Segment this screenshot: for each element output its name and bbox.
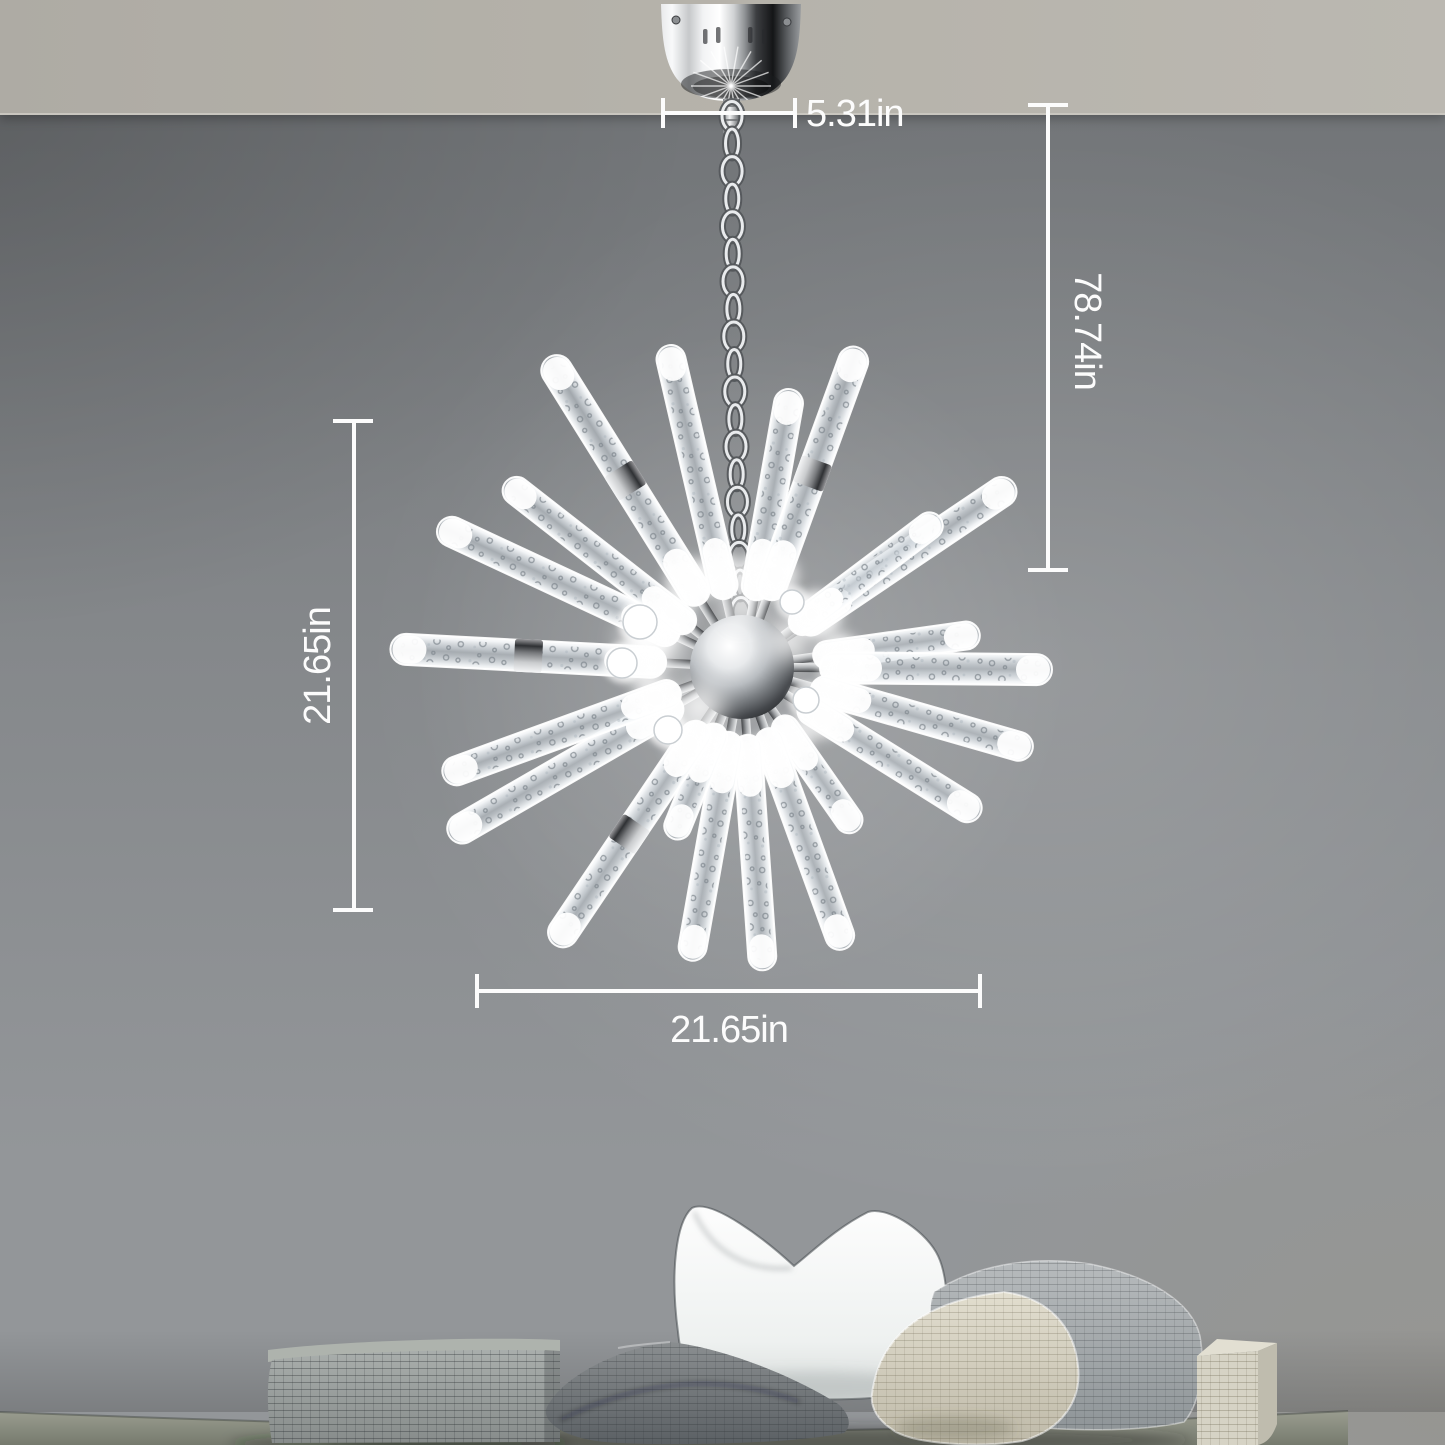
scene-graphics: [0, 0, 1445, 1445]
bolster-cushion: [268, 1339, 560, 1443]
dimension-line: [663, 111, 797, 115]
dimension-tick: [793, 98, 797, 128]
dimension-tick: [1028, 103, 1068, 107]
bench-scene: [0, 1206, 1445, 1445]
dimension-tick: [333, 908, 373, 912]
dimension-line: [1046, 105, 1050, 572]
dimension-label-fixture-width: 21.65in: [670, 1011, 788, 1049]
dimension-line: [352, 421, 356, 912]
dimension-tick: [333, 419, 373, 423]
textured-cube: [1197, 1339, 1277, 1445]
canopy-screw: [783, 18, 791, 26]
dimension-tick: [661, 98, 665, 128]
dimension-tick: [1028, 568, 1068, 572]
dimension-line: [477, 989, 980, 993]
product-dimension-image: 5.31in 78.74in 21.65in 21.65in: [0, 0, 1445, 1445]
dimension-label-overall-height: 78.74in: [1068, 272, 1106, 390]
dimension-label-fixture-height: 21.65in: [299, 607, 337, 725]
dimension-tick: [978, 974, 982, 1008]
dimension-tick: [475, 974, 479, 1008]
dimension-label-canopy-width: 5.31in: [806, 95, 904, 133]
canopy-screw: [672, 16, 680, 24]
